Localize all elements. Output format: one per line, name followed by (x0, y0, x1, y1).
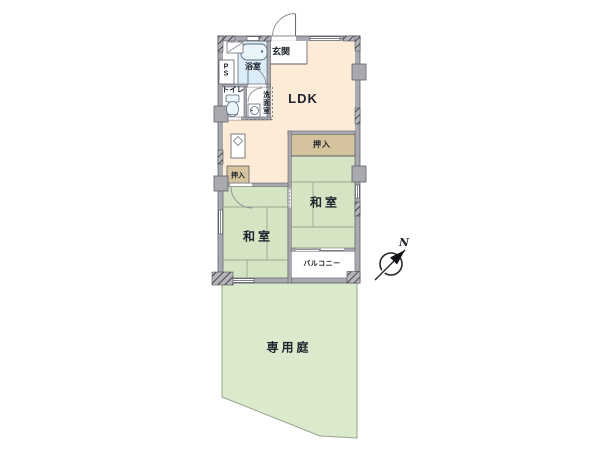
shoe-cabinet-icon (227, 42, 243, 53)
pipe-space-box (219, 60, 234, 84)
north-compass-icon (375, 250, 405, 280)
japanese-room-left-floor (223, 186, 288, 278)
balcony-floor (291, 250, 355, 278)
genkan-floor (270, 41, 307, 64)
washbasin-icon (248, 104, 260, 117)
private-garden-area (222, 283, 357, 438)
bathtub-icon (241, 44, 267, 60)
floorplan-drawing (0, 0, 600, 450)
toilet-icon (226, 95, 239, 117)
floorplan-page: 玄関 浴室 P S トイレ 洗面室 LDK 押入 押入 和室 和室 バルコニー … (0, 0, 600, 450)
bath-faucet-icon (261, 50, 263, 52)
closet-right-floor (291, 134, 355, 156)
japanese-room-right-floor (291, 156, 355, 250)
water-heater-icon (231, 134, 245, 158)
